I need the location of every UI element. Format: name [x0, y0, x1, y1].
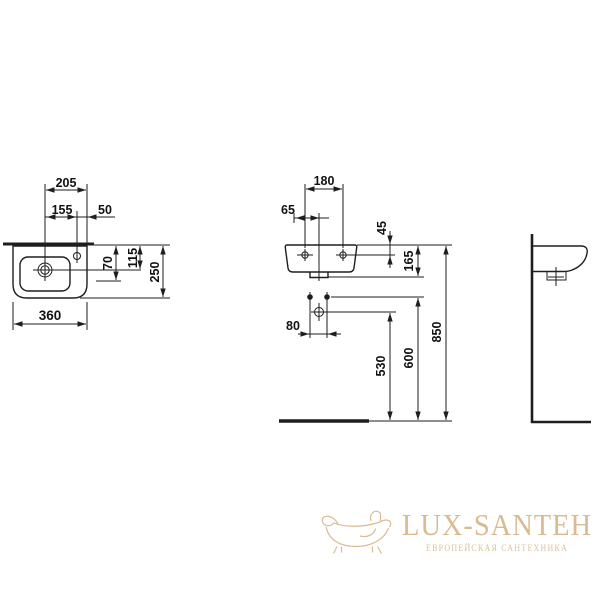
dim-label-70: 70 — [101, 256, 115, 270]
dim-label-850: 850 — [430, 322, 444, 343]
brand-tagline: ЕВРОПЕЙСКАЯ САНТЕХНИКА — [426, 542, 568, 554]
technical-drawing-page: 205 155 50 360 70 115 250 — [0, 0, 600, 600]
side-view — [531, 234, 591, 423]
dim-label-155: 155 — [52, 203, 73, 217]
brand-logo: LUX-SANTEH ЕВРОПЕЙСКАЯ САНТЕХНИКА — [322, 507, 592, 554]
dim-label-165: 165 — [402, 251, 416, 272]
dim-label-80: 80 — [286, 319, 300, 333]
drawing-canvas: 205 155 50 360 70 115 250 — [0, 0, 600, 600]
dim-label-205: 205 — [56, 176, 77, 190]
dim-label-180: 180 — [314, 174, 335, 188]
dim-label-250: 250 — [148, 262, 162, 283]
dim-label-50: 50 — [98, 203, 112, 217]
dim-label-530: 530 — [374, 356, 388, 377]
dim-label-360: 360 — [39, 308, 62, 323]
dim-label-600: 600 — [402, 348, 416, 369]
dim-label-45: 45 — [375, 221, 389, 235]
bathtub-icon — [322, 511, 390, 553]
plan-view: 205 155 50 360 70 115 250 — [3, 176, 170, 330]
side-basin-profile — [533, 246, 587, 272]
brand-name: LUX-SANTEH — [402, 507, 592, 542]
dim-label-115: 115 — [126, 248, 140, 268]
front-basin-outline — [285, 245, 356, 272]
front-view: 180 65 80 45 165 530 600 850 — [279, 174, 452, 421]
dim-label-65: 65 — [281, 203, 295, 217]
